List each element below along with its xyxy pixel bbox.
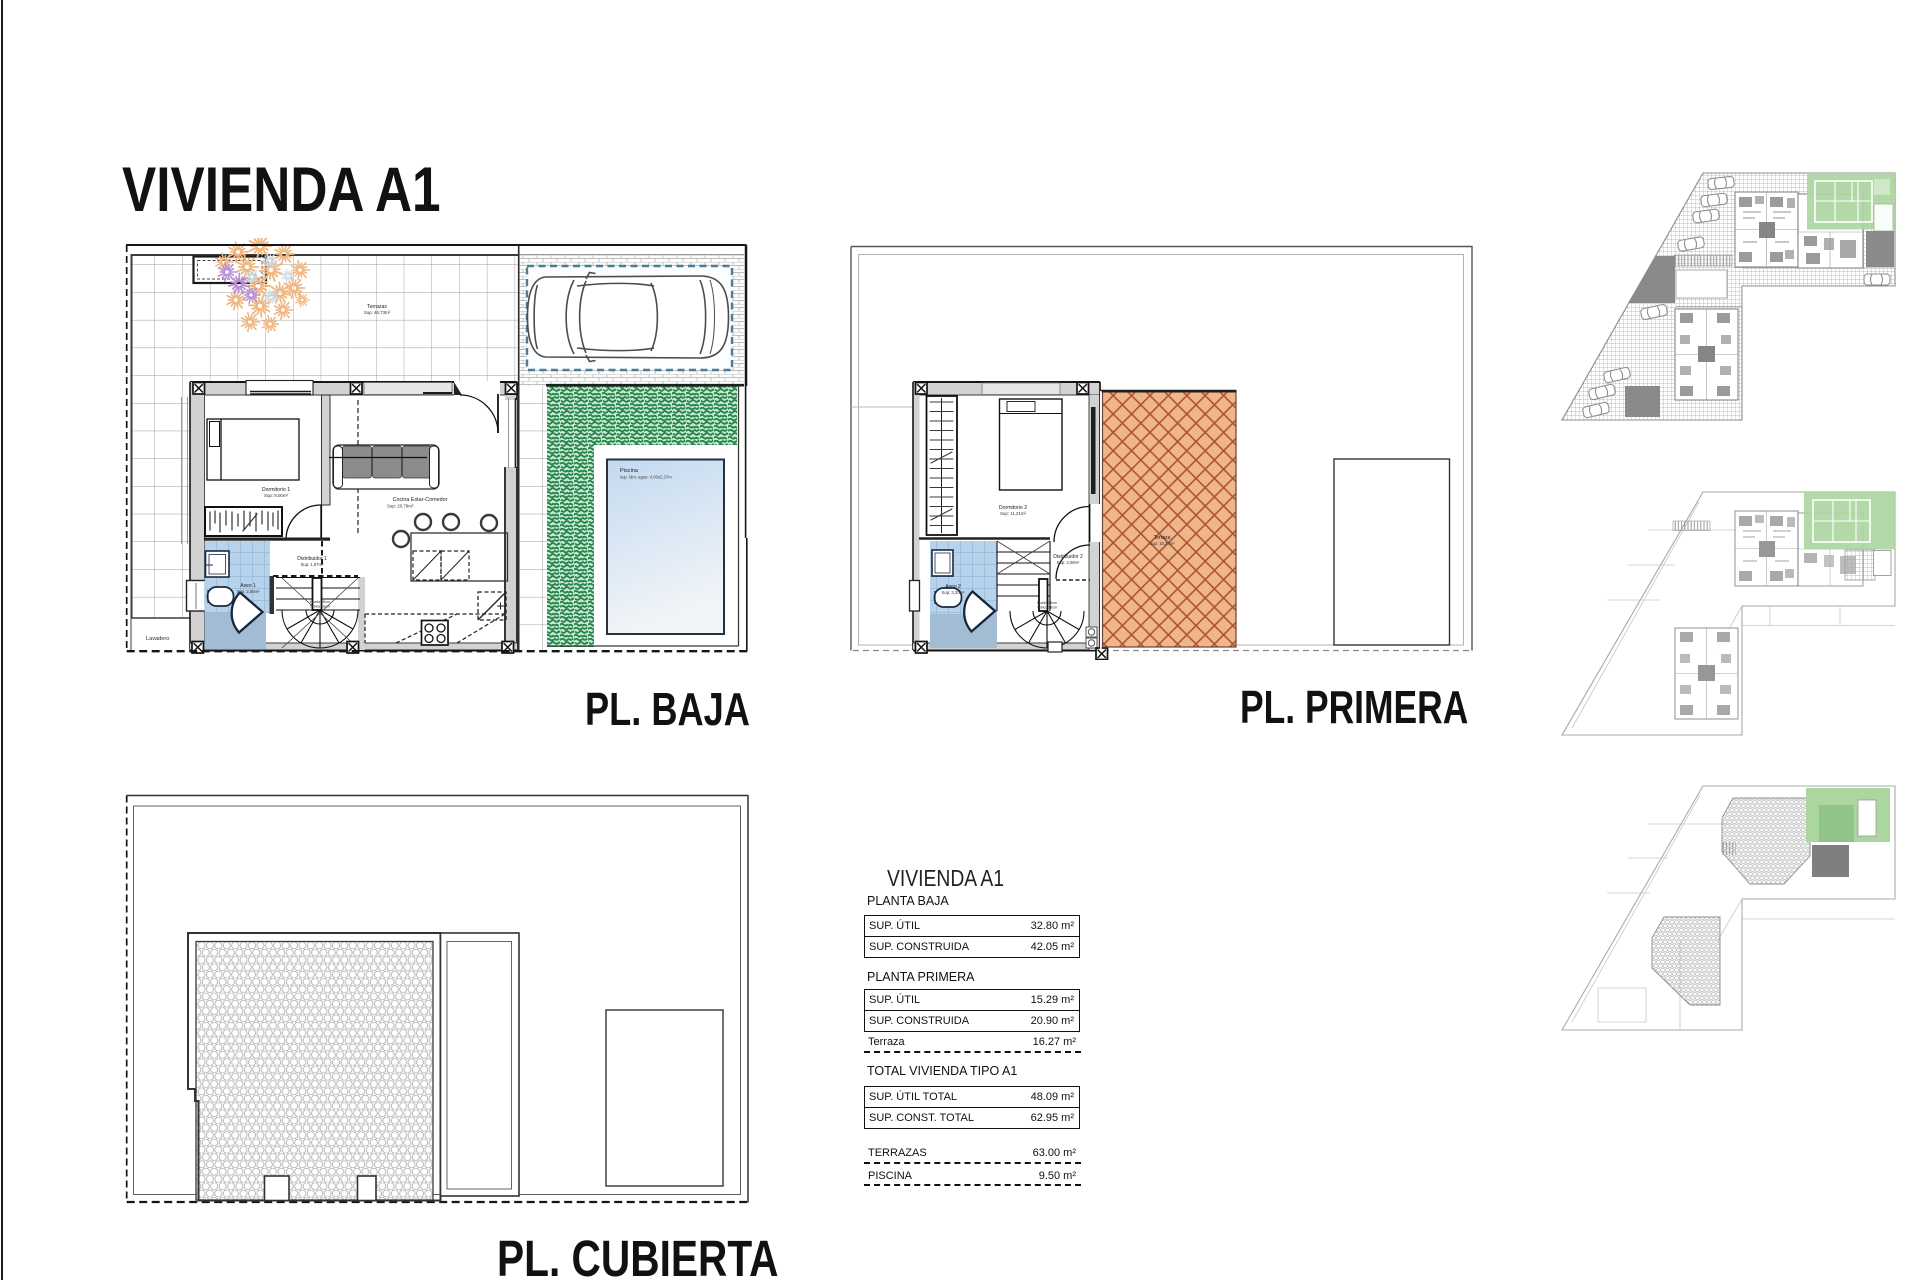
svg-text:Sup: 3,06m²: Sup: 3,06m² — [1057, 560, 1080, 565]
svg-text:Tabica 18cm: Tabica 18cm — [310, 605, 330, 609]
svg-text:Sup: 2,65m²: Sup: 2,65m² — [237, 589, 260, 594]
svg-text:Sup: 46,73m²: Sup: 46,73m² — [364, 310, 391, 315]
svg-text:Huella 28cm: Huella 28cm — [310, 600, 330, 604]
svg-text:Sup: 8,00m²: Sup: 8,00m² — [264, 493, 288, 498]
svg-text:Cocina Estar-Comedor: Cocina Estar-Comedor — [393, 497, 448, 503]
svg-text:Sup: 1,87m²: Sup: 1,87m² — [301, 562, 324, 567]
svg-text:Tabica 18cm: Tabica 18cm — [1037, 606, 1057, 610]
svg-text:Sup: 3,20m²: Sup: 3,20m² — [942, 590, 965, 595]
svg-text:Piscina: Piscina — [620, 468, 639, 474]
svg-text:Lavadero: Lavadero — [146, 636, 169, 642]
svg-text:Huella 28cm: Huella 28cm — [1037, 601, 1057, 605]
svg-text:Sup: 11,21m²: Sup: 11,21m² — [1000, 511, 1027, 516]
svg-text:Sup: 16,27m²: Sup: 16,27m² — [1149, 541, 1175, 546]
svg-text:Sup: 20,79m²: Sup: 20,79m² — [387, 504, 414, 509]
svg-text:sup. lám. agua: 4,00x2,37m: sup. lám. agua: 4,00x2,37m — [620, 475, 672, 480]
